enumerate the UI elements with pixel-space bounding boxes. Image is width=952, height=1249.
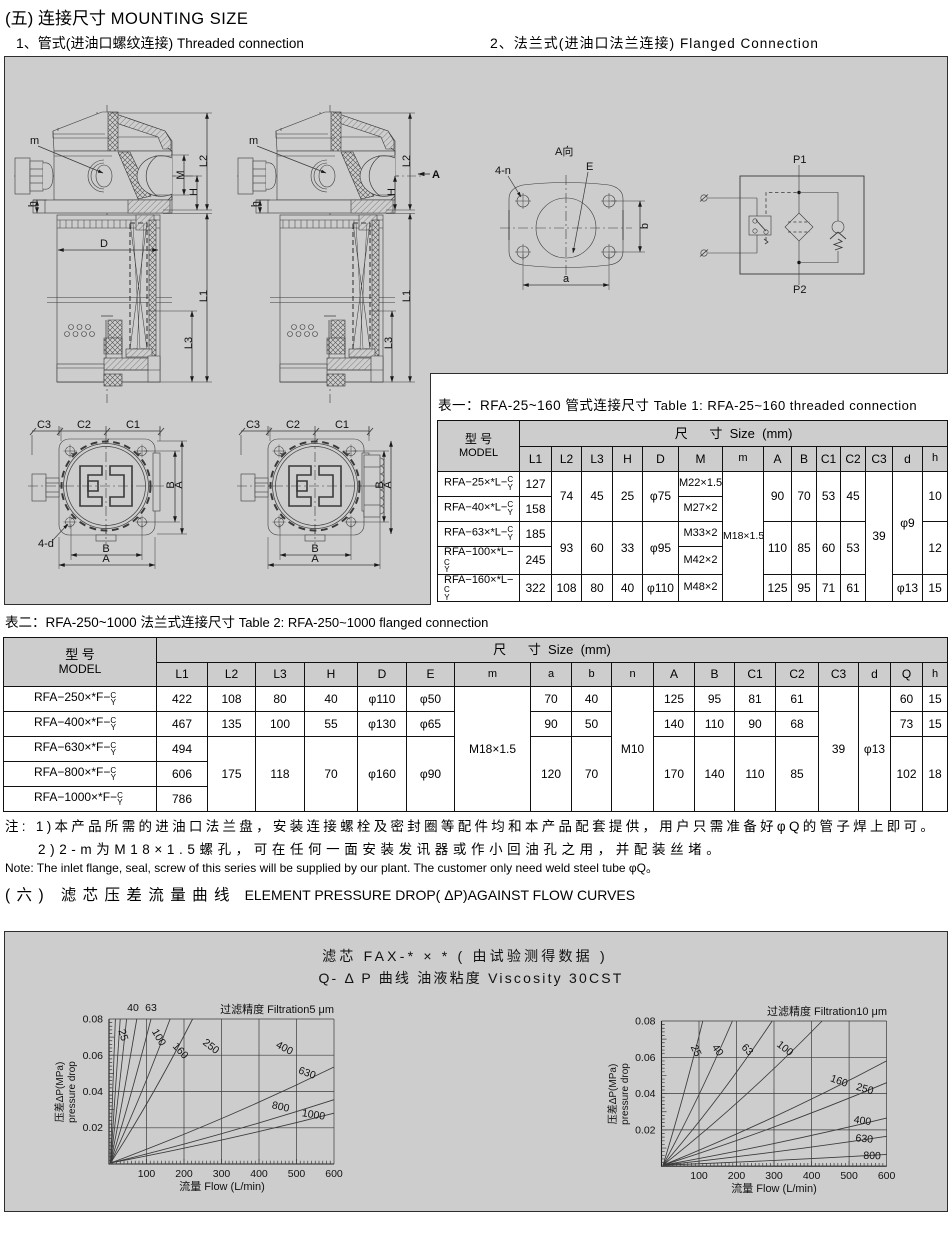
svg-text:0.06: 0.06 [83, 1050, 104, 1062]
svg-text:500: 500 [288, 1168, 306, 1180]
svg-text:40: 40 [127, 1002, 139, 1014]
svg-text:0.06: 0.06 [635, 1052, 656, 1064]
svg-text:压差ΔP(MPa): 压差ΔP(MPa) [53, 1062, 66, 1123]
svg-text:0.04: 0.04 [83, 1086, 104, 1098]
svg-text:流量 Flow (L/min): 流量 Flow (L/min) [179, 1179, 265, 1193]
svg-text:0.08: 0.08 [635, 1016, 656, 1028]
svg-text:400: 400 [803, 1170, 821, 1182]
svg-text:400: 400 [250, 1168, 268, 1180]
svg-text:100: 100 [138, 1168, 156, 1180]
svg-text:pressure drop: pressure drop [67, 1061, 78, 1123]
svg-text:600: 600 [325, 1168, 343, 1180]
svg-text:Q- Δ P 曲线 油液粘度 Viscosity 30CST: Q- Δ P 曲线 油液粘度 Viscosity 30CST [318, 970, 623, 986]
svg-text:pressure drop: pressure drop [620, 1063, 631, 1125]
svg-text:800: 800 [863, 1150, 881, 1163]
svg-text:400: 400 [853, 1114, 872, 1128]
svg-text:600: 600 [878, 1170, 896, 1182]
svg-text:0.02: 0.02 [635, 1124, 656, 1136]
svg-text:0.08: 0.08 [83, 1014, 104, 1026]
svg-text:过滤精度 Filtration10 μm: 过滤精度 Filtration10 μm [767, 1004, 887, 1018]
svg-text:300: 300 [765, 1170, 783, 1182]
svg-text:滤芯 FAX-* × * ( 由试验测得数据 ): 滤芯 FAX-* × * ( 由试验测得数据 ) [322, 948, 608, 964]
svg-text:200: 200 [175, 1168, 193, 1180]
svg-text:流量 Flow (L/min): 流量 Flow (L/min) [731, 1181, 817, 1195]
svg-text:63: 63 [145, 1002, 157, 1014]
svg-text:压差ΔP(MPa): 压差ΔP(MPa) [606, 1064, 619, 1125]
svg-text:200: 200 [728, 1170, 746, 1182]
svg-text:0.04: 0.04 [635, 1088, 656, 1100]
svg-text:300: 300 [213, 1168, 231, 1180]
svg-text:100: 100 [690, 1170, 708, 1182]
svg-text:630: 630 [855, 1132, 874, 1145]
svg-text:0.02: 0.02 [83, 1122, 104, 1134]
svg-text:过滤精度 Filtration5 μm: 过滤精度 Filtration5 μm [220, 1002, 334, 1016]
svg-text:500: 500 [840, 1170, 858, 1182]
